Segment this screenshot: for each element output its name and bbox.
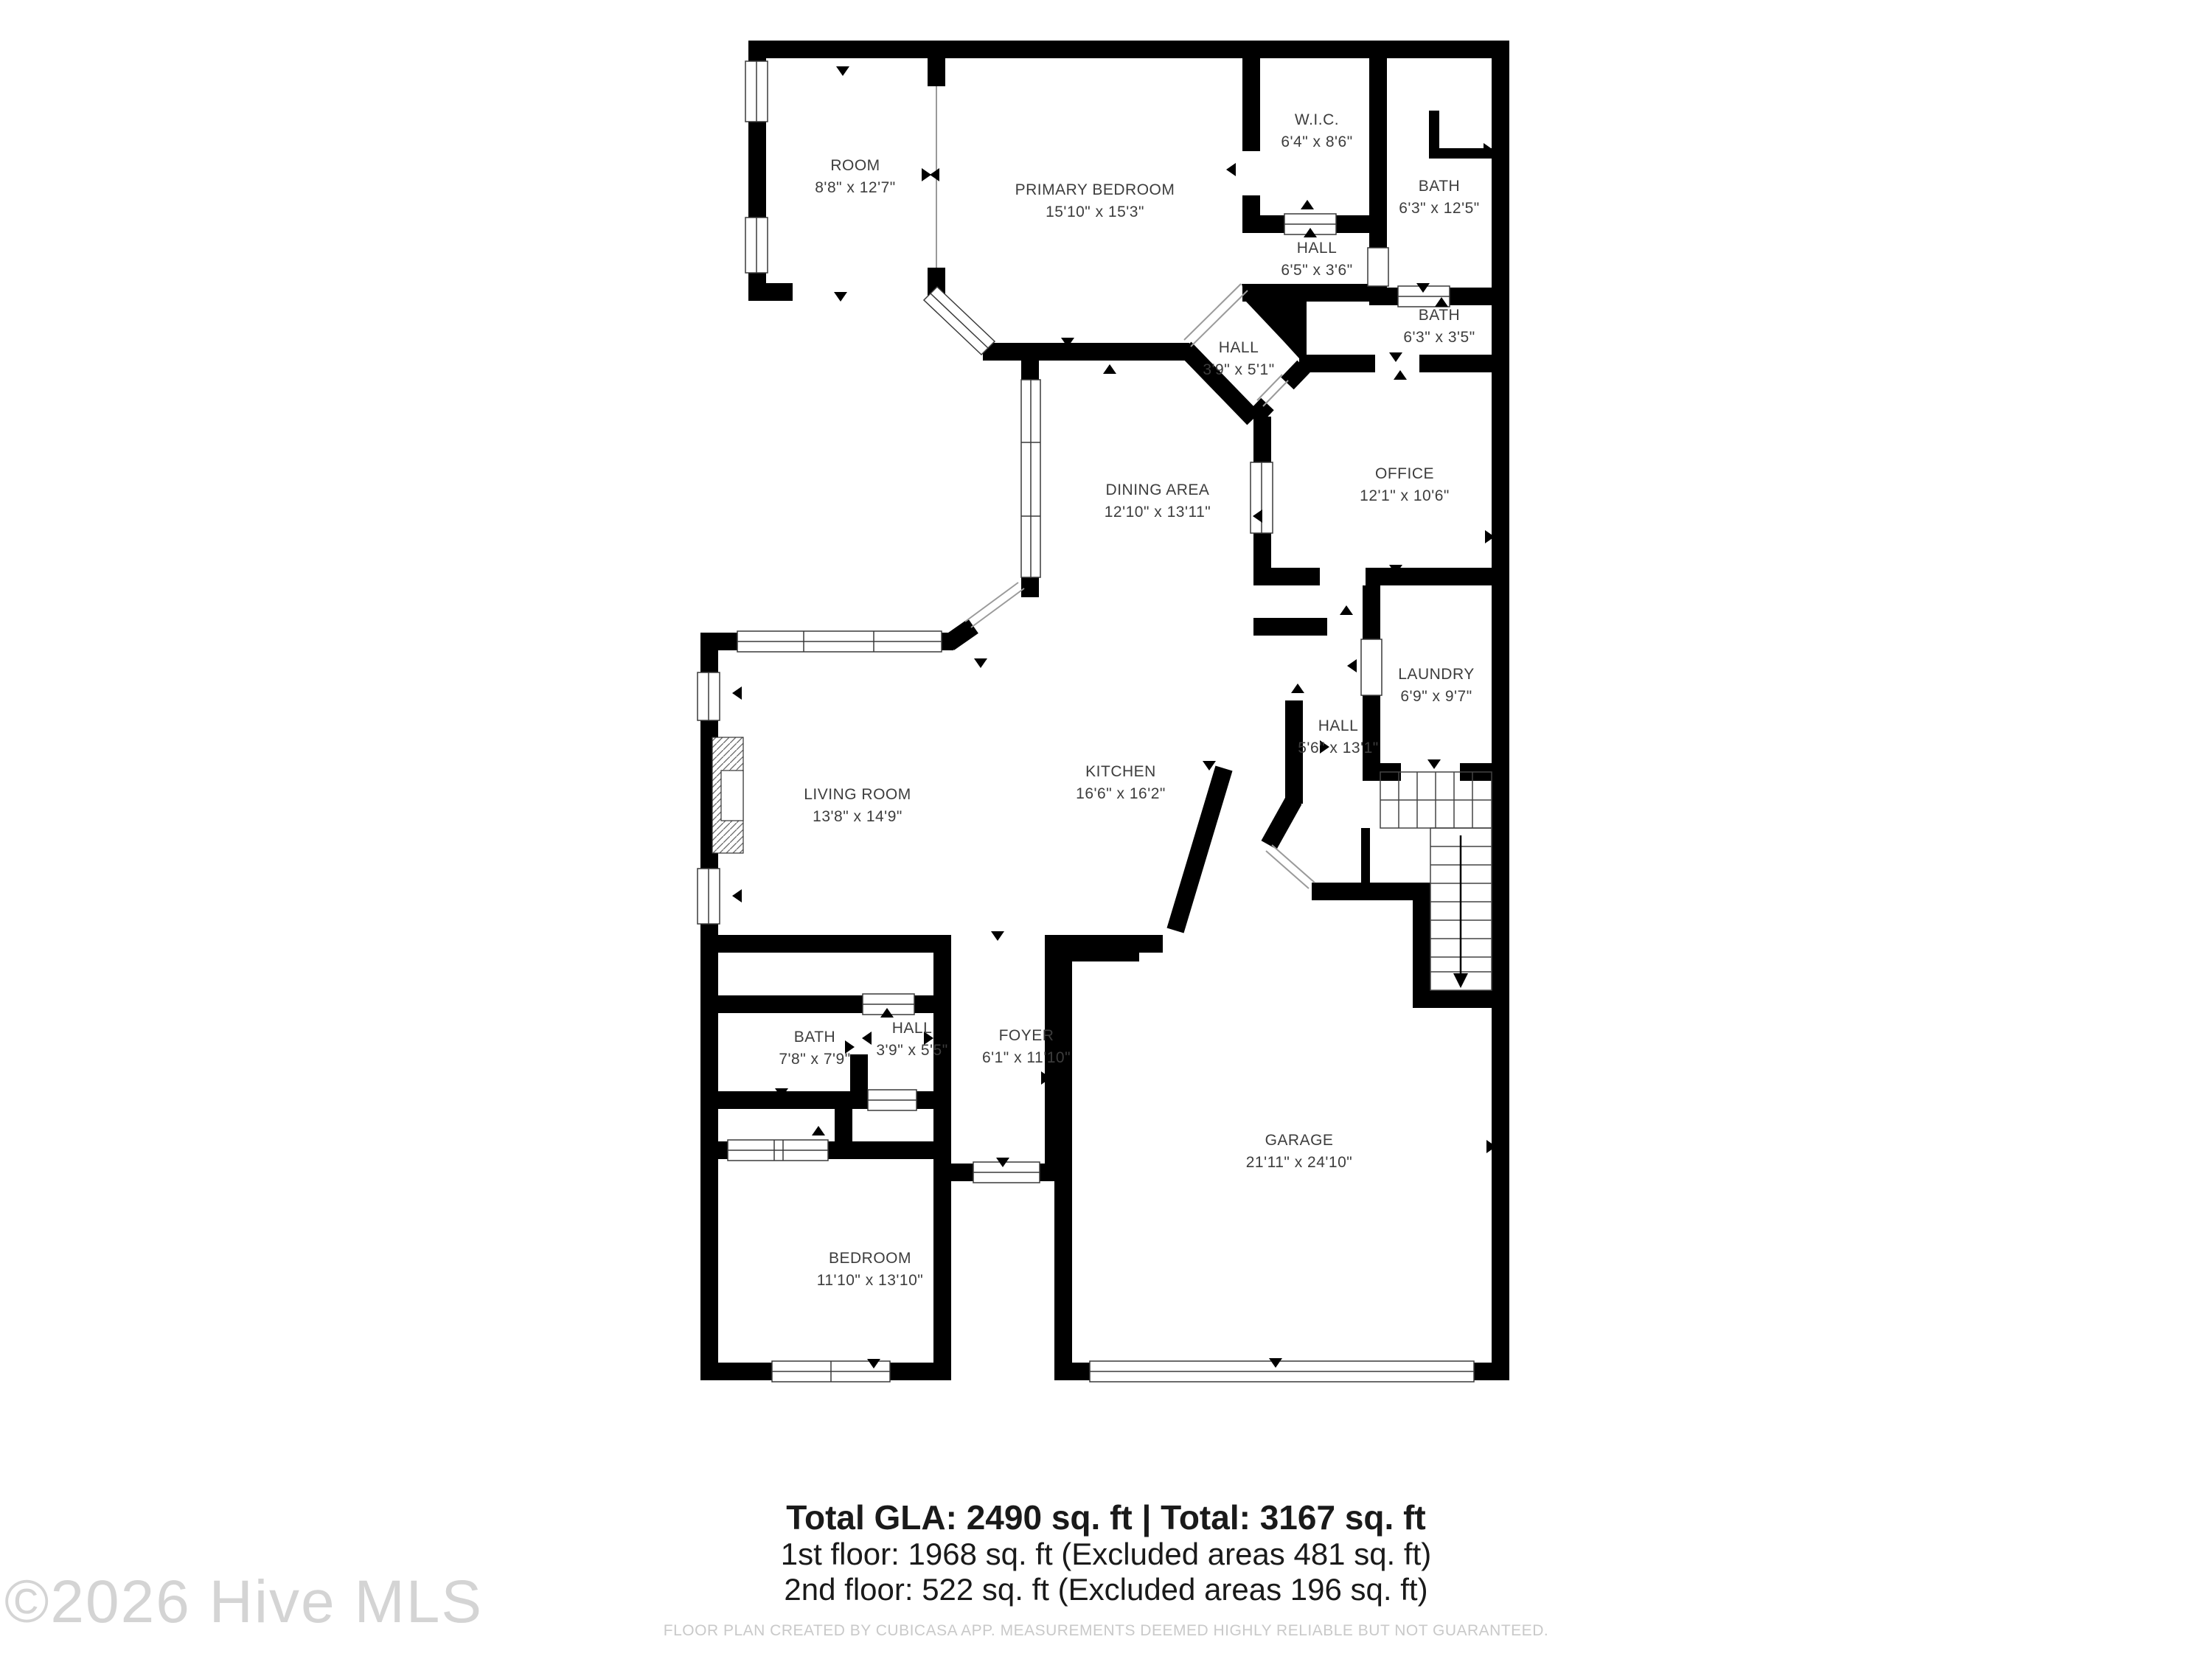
room-label-living-room: LIVING ROOM13'8" x 14'9" (804, 784, 911, 828)
room-name: DINING AREA (1105, 479, 1211, 501)
room-name: HALL (1298, 715, 1379, 737)
room-dims: 6'1" x 11'10" (982, 1047, 1071, 1069)
total-gla-line: Total GLA: 2490 sq. ft | Total: 3167 sq.… (0, 1498, 2212, 1537)
room-label-hall-middle: HALL5'6" x 13'1" (1298, 715, 1379, 759)
room-label-hall-lower: HALL3'9" x 5'5" (876, 1018, 947, 1062)
room-name: HALL (1203, 337, 1274, 359)
room-dims: 11'10" x 13'10" (817, 1270, 923, 1292)
floor-plan-drawing (0, 0, 2212, 1659)
fireplace-icon (712, 737, 743, 853)
room-label-hall-upper: HALL6'5" x 3'6" (1281, 237, 1352, 282)
room-label-bath-lower: BATH7'8" x 7'9" (779, 1026, 850, 1071)
room-dims: 6'3" x 3'5" (1403, 327, 1475, 349)
room-dims: 16'6" x 16'2" (1076, 783, 1166, 805)
room-dims: 6'5" x 3'6" (1281, 260, 1352, 282)
room-label-garage: GARAGE21'11" x 24'10" (1246, 1130, 1352, 1174)
room-label-bath-small: BATH6'3" x 3'5" (1403, 305, 1475, 349)
room-label-wic: W.I.C.6'4" x 8'6" (1281, 109, 1352, 153)
room-name: BATH (1403, 305, 1475, 327)
room-name: FOYER (982, 1025, 1071, 1047)
room-name: HALL (876, 1018, 947, 1040)
room-name: LIVING ROOM (804, 784, 911, 806)
mls-watermark: ©2026 Hive MLS (4, 1568, 483, 1637)
room-label-hall-diamond: HALL3'9" x 5'1" (1203, 337, 1274, 381)
room-name: GARAGE (1246, 1130, 1352, 1152)
room-name: HALL (1281, 237, 1352, 260)
room-label-laundry: LAUNDRY6'9" x 9'7" (1398, 664, 1474, 708)
stairs-down-arrow (1453, 973, 1468, 988)
room-dims: 5'6" x 13'1" (1298, 737, 1379, 759)
room-dims: 6'9" x 9'7" (1398, 686, 1474, 708)
walls (700, 41, 1509, 1380)
room-dims: 8'8" x 12'7" (815, 177, 896, 199)
room-label-office: OFFICE12'1" x 10'6" (1360, 463, 1450, 507)
room-dims: 12'10" x 13'11" (1105, 501, 1211, 524)
room-dims: 13'8" x 14'9" (804, 806, 911, 828)
room-dims: 6'4" x 8'6" (1281, 131, 1352, 153)
room-name: ROOM (815, 155, 896, 177)
room-label-bath-upper: BATH6'3" x 12'5" (1399, 175, 1480, 220)
room-label-kitchen: KITCHEN16'6" x 16'2" (1076, 761, 1166, 805)
room-dims: 15'10" x 15'3" (1015, 201, 1175, 223)
room-label-primary-bedroom: PRIMARY BEDROOM15'10" x 15'3" (1015, 179, 1175, 223)
room-dims: 21'11" x 24'10" (1246, 1152, 1352, 1174)
room-label-foyer: FOYER6'1" x 11'10" (982, 1025, 1071, 1069)
room-name: LAUNDRY (1398, 664, 1474, 686)
room-name: BATH (779, 1026, 850, 1048)
room-name: W.I.C. (1281, 109, 1352, 131)
room-label-bedroom: BEDROOM11'10" x 13'10" (817, 1248, 923, 1292)
room-dims: 7'8" x 7'9" (779, 1048, 850, 1071)
room-name: KITCHEN (1076, 761, 1166, 783)
room-name: OFFICE (1360, 463, 1450, 485)
diagonal-walls (949, 348, 1304, 931)
room-dims: 6'3" x 12'5" (1399, 198, 1480, 220)
room-label-room: ROOM8'8" x 12'7" (815, 155, 896, 199)
room-name: PRIMARY BEDROOM (1015, 179, 1175, 201)
stairs-icon (1380, 772, 1492, 990)
room-dims: 12'1" x 10'6" (1360, 485, 1450, 507)
floor-plan: ROOM8'8" x 12'7" PRIMARY BEDROOM15'10" x… (0, 0, 2212, 1659)
room-dims: 3'9" x 5'1" (1203, 359, 1274, 381)
room-dims: 3'9" x 5'5" (876, 1040, 947, 1062)
room-name: BATH (1399, 175, 1480, 198)
first-floor-line: 1st floor: 1968 sq. ft (Excluded areas 4… (0, 1537, 2212, 1572)
room-label-dining-area: DINING AREA12'10" x 13'11" (1105, 479, 1211, 524)
room-name: BEDROOM (817, 1248, 923, 1270)
